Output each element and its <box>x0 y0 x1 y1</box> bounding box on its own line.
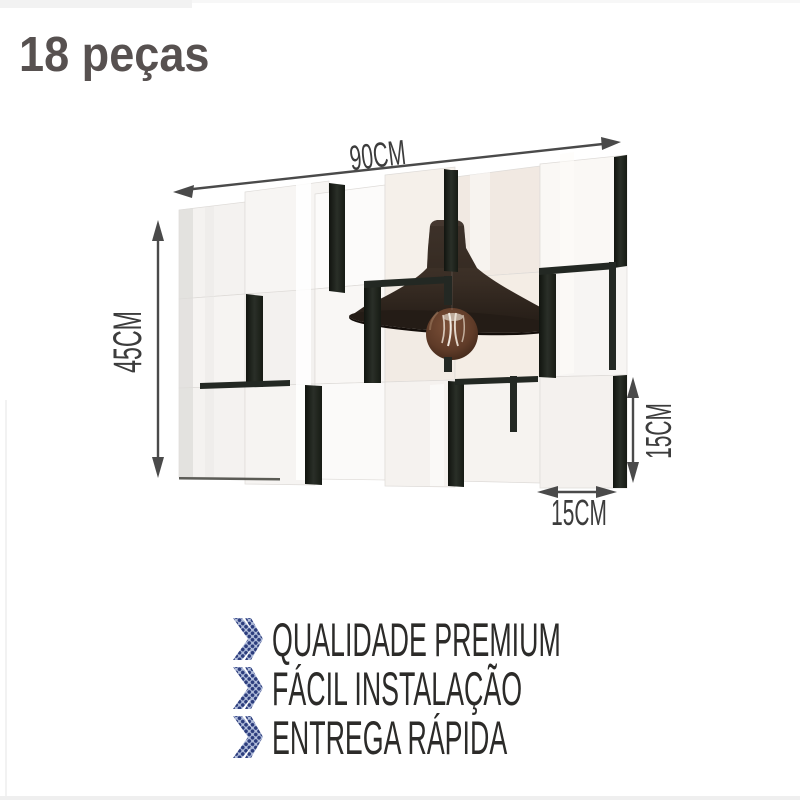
svg-text:15CM: 15CM <box>639 403 679 459</box>
svg-text:15CM: 15CM <box>551 493 607 533</box>
svg-text:45CM: 45CM <box>104 311 149 373</box>
svg-text:90CM: 90CM <box>348 134 408 179</box>
